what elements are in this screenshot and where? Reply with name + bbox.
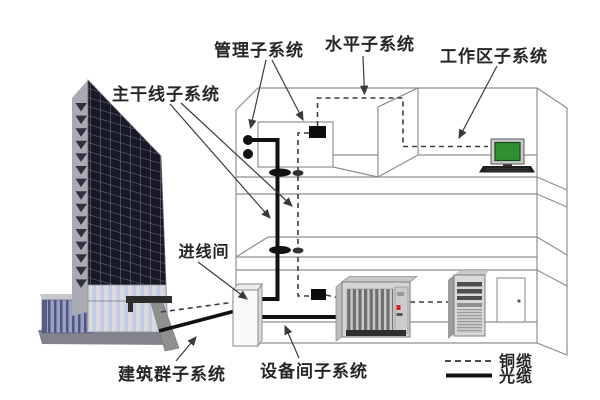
computer-workstation — [479, 139, 535, 173]
label-management-subsystem: 管理子系统 — [214, 40, 304, 60]
rack-led — [397, 305, 401, 310]
patch-point-dot — [243, 135, 253, 145]
drive-bay — [457, 282, 482, 287]
drive-bay — [457, 289, 482, 294]
monitor-screen — [495, 143, 520, 161]
entrance-arrow — [198, 262, 247, 299]
label-horizontal-subsystem: 水平子系统 — [325, 34, 415, 54]
campus-copper-cable — [161, 302, 235, 312]
legend-fiber-label: 光缆 — [498, 367, 533, 386]
converter-device — [311, 289, 326, 300]
label-backbone-subsystem: 主干线子系统 — [112, 84, 220, 104]
horizontal-run-cable — [318, 98, 489, 147]
backbone-arrow-1 — [170, 104, 270, 218]
server-tower — [448, 271, 489, 339]
label-work-area-subsystem: 工作区子系统 — [440, 46, 548, 66]
keyboard — [479, 166, 535, 173]
label-campus-subsystem: 建筑群子系统 — [118, 364, 226, 384]
diagram-canvas: 铜缆 光缆 管理子系统 水平子系统 工作区子系统 主干线子系统 进线间 建筑群子… — [0, 0, 600, 400]
patch-point-dot — [243, 149, 253, 159]
drive-bay — [457, 296, 482, 300]
door — [497, 278, 525, 322]
label-entrance-room: 进线间 — [178, 242, 229, 261]
equipment-arrow — [285, 326, 299, 358]
tower-window-facade — [88, 80, 166, 285]
cabling-system-diagram: 铜缆 光缆 管理子系统 水平子系统 工作区子系统 主干线子系统 进线间 建筑群子… — [0, 0, 600, 400]
vent-grille — [457, 309, 482, 333]
rack-base — [346, 330, 406, 336]
equipment-rack — [336, 277, 417, 342]
door-knob — [517, 299, 520, 302]
campus-cables — [159, 302, 235, 331]
card-slots — [347, 289, 393, 331]
label-equipment-room-subsystem: 设备间子系统 — [260, 361, 368, 381]
office-tower-image — [38, 80, 179, 351]
campus-fiber-cable — [159, 311, 235, 331]
management-arrow-right — [272, 60, 303, 120]
hub-device — [309, 126, 326, 138]
partition-wall — [378, 88, 418, 177]
campus-arrow — [176, 337, 196, 361]
legend: 铜缆 光缆 — [445, 352, 533, 386]
work-area-arrow — [459, 66, 497, 138]
entrance-cabinet — [233, 284, 262, 346]
